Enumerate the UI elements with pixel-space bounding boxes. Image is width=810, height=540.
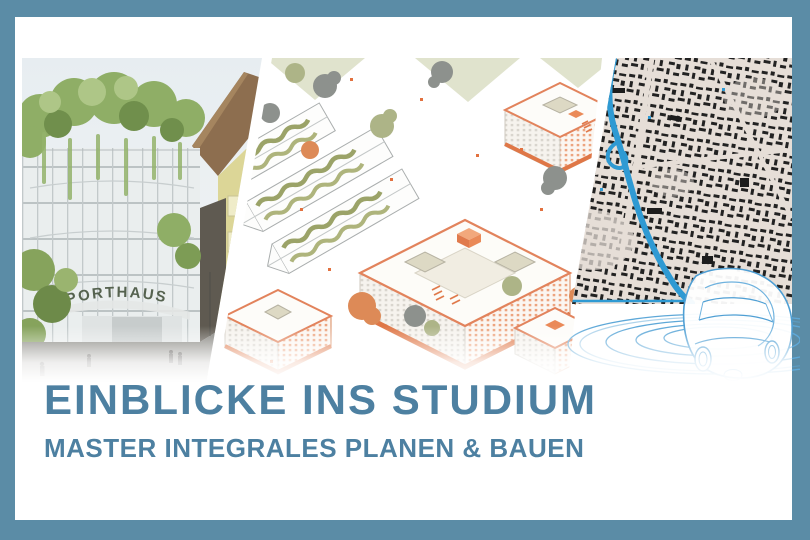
banner-graphic: SPORTHAUS: [0, 0, 810, 540]
title-block: EINBLICKE INS STUDIUM MASTER INTEGRALES …: [44, 378, 784, 464]
banner-title: EINBLICKE INS STUDIUM: [44, 378, 784, 422]
banner-subtitle: MASTER INTEGRALES PLANEN & BAUEN: [44, 433, 784, 464]
